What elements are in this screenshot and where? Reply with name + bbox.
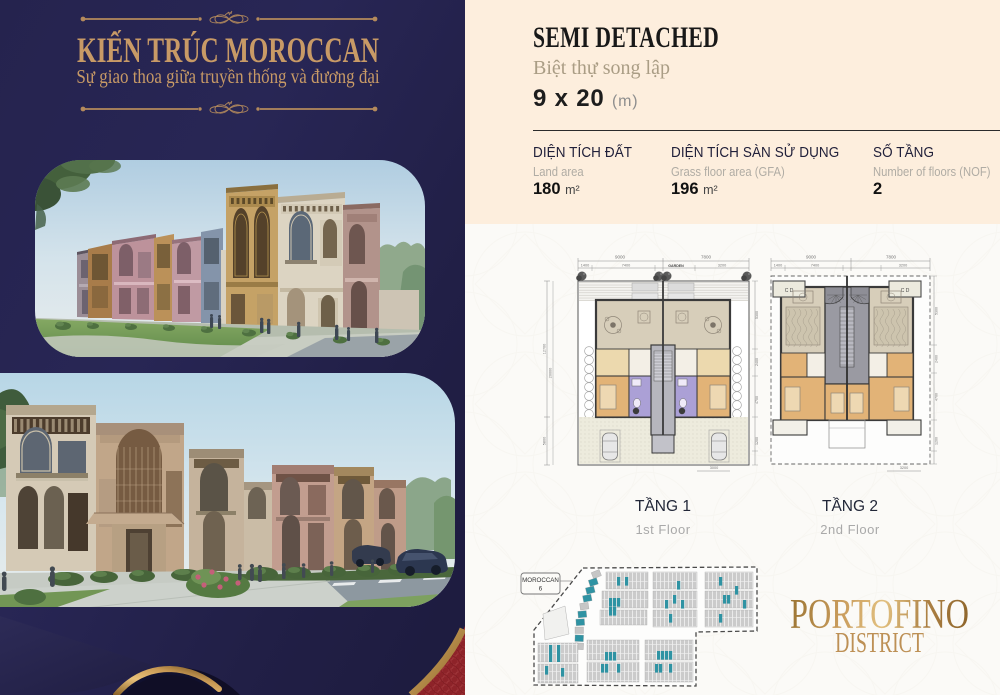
svg-text:C D: C D xyxy=(785,288,794,294)
svg-text:5300: 5300 xyxy=(935,307,939,315)
svg-text:6: 6 xyxy=(539,586,543,593)
svg-text:7400: 7400 xyxy=(622,264,630,268)
svg-text:2400: 2400 xyxy=(935,355,939,363)
svg-text:MOROCCAN: MOROCCAN xyxy=(522,577,559,584)
svg-text:5300: 5300 xyxy=(755,311,759,319)
svg-text:9000: 9000 xyxy=(615,255,626,260)
svg-text:3200: 3200 xyxy=(900,466,908,470)
svg-text:5800: 5800 xyxy=(543,437,547,445)
svg-text:GARDEN: GARDEN xyxy=(668,264,684,268)
svg-text:7800: 7800 xyxy=(886,255,897,260)
svg-text:3000: 3000 xyxy=(710,466,718,470)
svg-text:9000: 9000 xyxy=(806,255,817,260)
svg-text:4700: 4700 xyxy=(755,396,759,404)
svg-text:3200: 3200 xyxy=(718,264,726,268)
svg-text:1400: 1400 xyxy=(581,264,589,268)
svg-text:7800: 7800 xyxy=(701,255,712,260)
svg-text:1400: 1400 xyxy=(774,264,782,268)
svg-text:2400: 2400 xyxy=(755,358,759,366)
svg-text:1200: 1200 xyxy=(935,437,939,445)
svg-text:C D: C D xyxy=(901,288,910,294)
svg-text:3200: 3200 xyxy=(899,264,907,268)
svg-text:20000: 20000 xyxy=(549,368,553,379)
svg-text:12700: 12700 xyxy=(543,344,547,355)
svg-text:7400: 7400 xyxy=(811,264,819,268)
svg-text:4700: 4700 xyxy=(935,393,939,401)
svg-text:1200: 1200 xyxy=(755,437,759,445)
